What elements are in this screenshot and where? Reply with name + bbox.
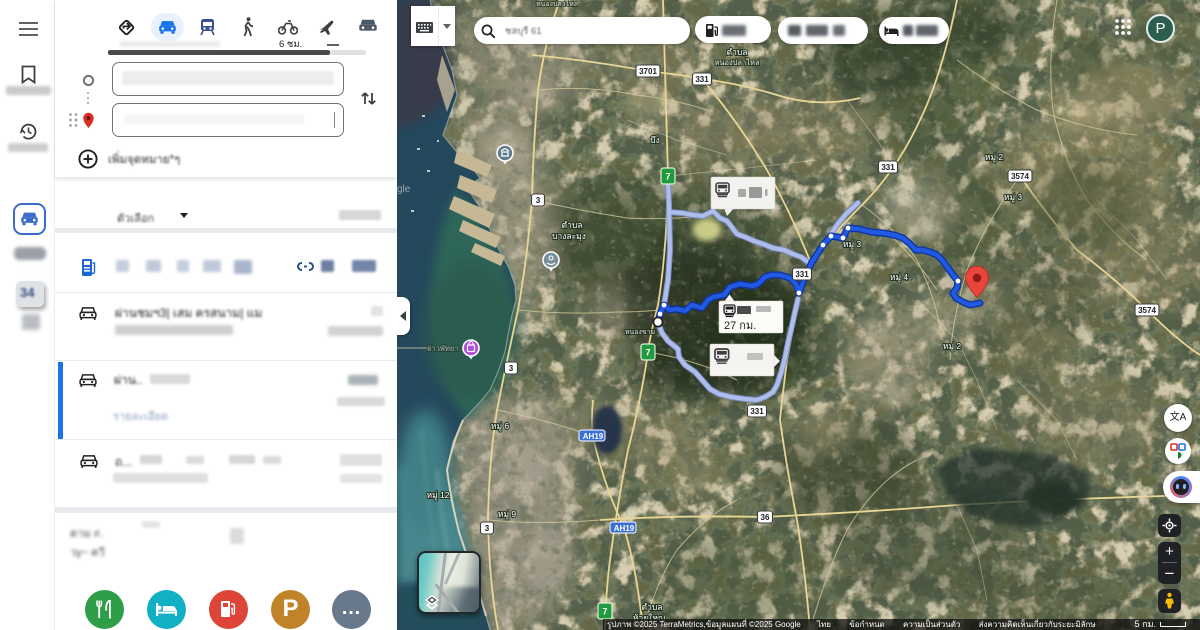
svg-text:3: 3 [509, 364, 514, 373]
svg-text:3: 3 [485, 524, 490, 533]
svg-text:331: 331 [795, 270, 809, 279]
svg-text:AH19: AH19 [583, 432, 604, 441]
svg-text:หมู่ 9: หมู่ 9 [498, 509, 517, 520]
svg-text:บางละมุง: บางละมุง [552, 231, 586, 242]
svg-text:หนองปลาไหล: หนองปลาไหล [714, 58, 759, 67]
svg-text:ตำบล: ตำบล [727, 47, 748, 57]
svg-text:หมู่ 3: หมู่ 3 [843, 239, 862, 250]
svg-text:3701: 3701 [639, 67, 657, 76]
svg-text:หนองปลาไหล: หนองปลาไหล [536, 0, 578, 8]
svg-text:7: 7 [645, 348, 650, 358]
svg-text:หมู่ 12: หมู่ 12 [426, 490, 449, 501]
svg-text:7: 7 [665, 172, 670, 182]
svg-text:36: 36 [761, 513, 770, 522]
svg-text:3: 3 [536, 196, 541, 205]
svg-text:3574: 3574 [1011, 172, 1029, 181]
svg-text:331: 331 [750, 407, 764, 416]
svg-text:อ่าวพัทยา: อ่าวพัทยา [427, 344, 458, 353]
svg-text:3574: 3574 [1138, 306, 1156, 315]
svg-text:331: 331 [695, 75, 709, 84]
svg-text:หมู่ 6: หมู่ 6 [491, 421, 510, 432]
svg-text:หมู่ 4: หมู่ 4 [890, 272, 909, 283]
svg-text:ตำบล: ตำบล [562, 220, 583, 230]
svg-text:AH19: AH19 [614, 524, 635, 533]
svg-text:หนองขาม: หนองขาม [625, 329, 655, 336]
svg-text:บึง: บึง [650, 135, 660, 145]
svg-text:หมู่ 2: หมู่ 2 [943, 341, 962, 352]
svg-text:หมู่ 2: หมู่ 2 [985, 152, 1004, 163]
svg-text:27 กม.: 27 กม. [724, 320, 756, 332]
svg-text:ตำบล: ตำบล [642, 602, 663, 612]
svg-text:หมู่ 3: หมู่ 3 [1004, 192, 1023, 203]
svg-text:gle: gle [397, 184, 411, 195]
svg-text:7: 7 [602, 607, 607, 617]
svg-text:331: 331 [881, 163, 895, 172]
